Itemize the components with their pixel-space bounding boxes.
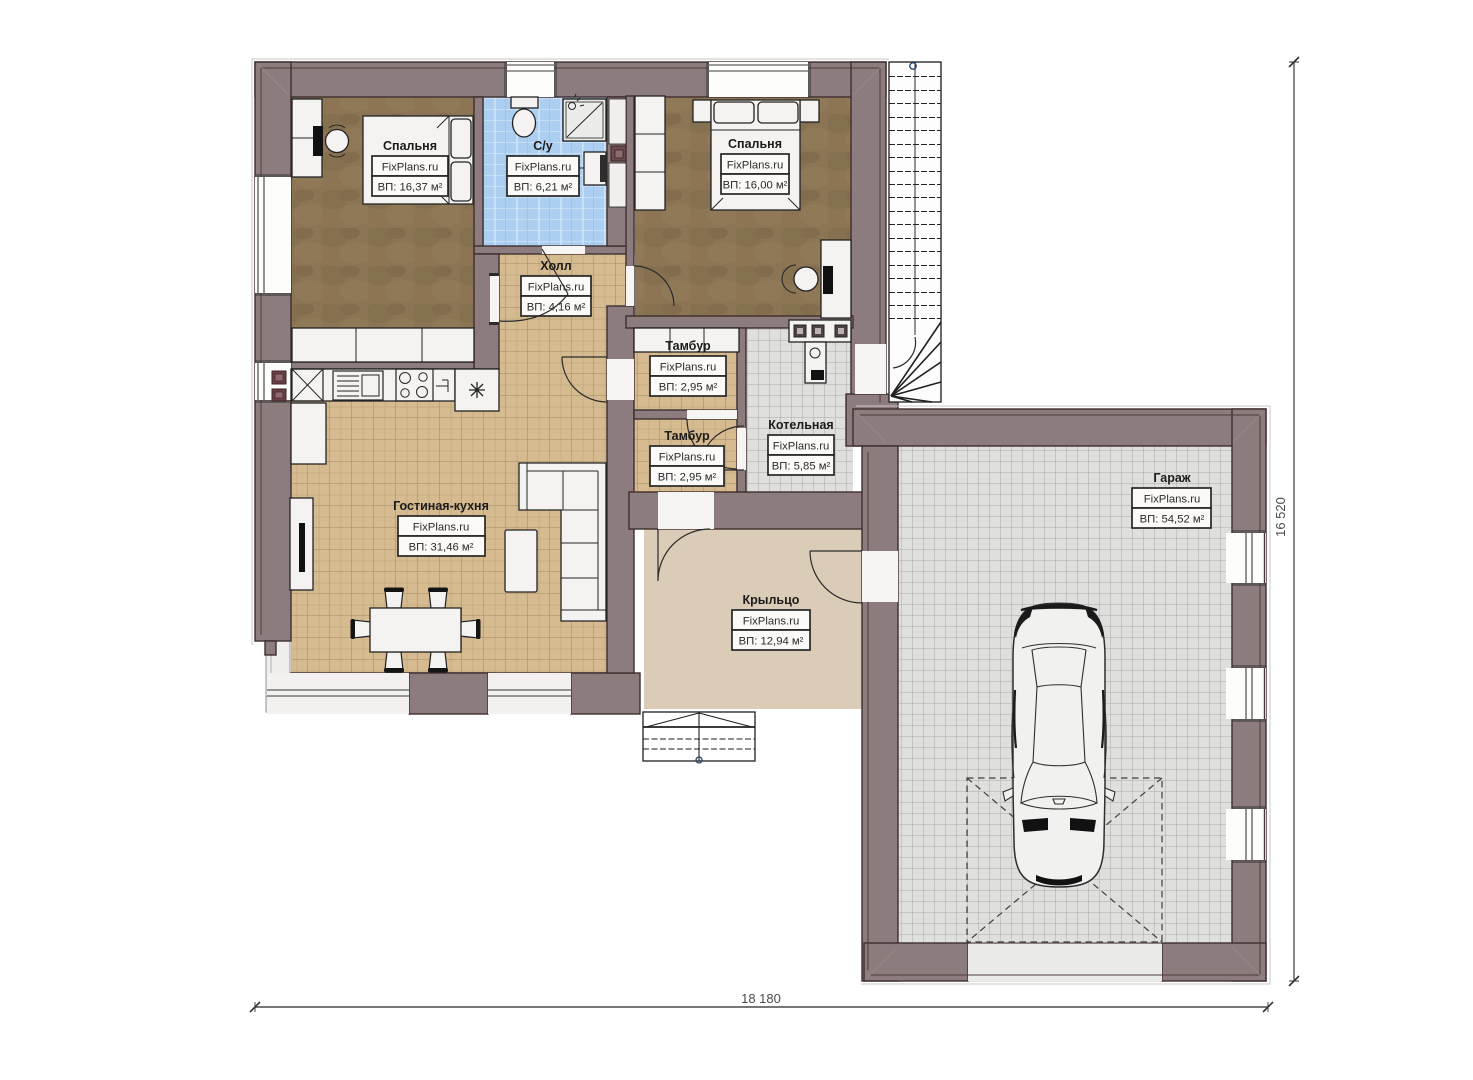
svg-text:FixPlans.ru: FixPlans.ru bbox=[528, 282, 585, 294]
svg-text:FixPlans.ru: FixPlans.ru bbox=[727, 160, 784, 172]
svg-text:FixPlans.ru: FixPlans.ru bbox=[660, 362, 717, 374]
svg-text:Крыльцо: Крыльцо bbox=[743, 593, 800, 607]
svg-text:ВП: 6,21 м²: ВП: 6,21 м² bbox=[514, 182, 573, 194]
svg-text:FixPlans.ru: FixPlans.ru bbox=[382, 162, 439, 174]
svg-text:FixPlans.ru: FixPlans.ru bbox=[659, 452, 716, 464]
svg-text:ВП: 2,95 м²: ВП: 2,95 м² bbox=[658, 472, 717, 484]
svg-text:С/у: С/у bbox=[533, 139, 553, 153]
svg-text:FixPlans.ru: FixPlans.ru bbox=[515, 162, 572, 174]
svg-text:16 520: 16 520 bbox=[1273, 497, 1288, 537]
svg-text:FixPlans.ru: FixPlans.ru bbox=[1144, 494, 1201, 506]
svg-text:ВП: 16,00 м²: ВП: 16,00 м² bbox=[723, 180, 788, 192]
svg-text:FixPlans.ru: FixPlans.ru bbox=[773, 441, 830, 453]
svg-text:ВП: 16,37 м²: ВП: 16,37 м² bbox=[378, 182, 443, 194]
svg-text:Холл: Холл bbox=[540, 259, 571, 273]
svg-text:Спальня: Спальня bbox=[728, 137, 782, 151]
svg-text:ВП: 2,95 м²: ВП: 2,95 м² bbox=[659, 382, 718, 394]
svg-text:FixPlans.ru: FixPlans.ru bbox=[413, 522, 470, 534]
svg-text:18 180: 18 180 bbox=[741, 991, 781, 1006]
svg-text:Тамбур: Тамбур bbox=[665, 339, 711, 353]
svg-text:Спальня: Спальня bbox=[383, 139, 437, 153]
svg-text:ВП: 5,85 м²: ВП: 5,85 м² bbox=[772, 461, 831, 473]
svg-text:ВП: 12,94 м²: ВП: 12,94 м² bbox=[739, 636, 804, 648]
svg-text:ВП: 31,46 м²: ВП: 31,46 м² bbox=[409, 542, 474, 554]
svg-text:ВП: 54,52 м²: ВП: 54,52 м² bbox=[1140, 514, 1205, 526]
svg-text:Котельная: Котельная bbox=[768, 418, 833, 432]
svg-text:Гостиная-кухня: Гостиная-кухня bbox=[393, 499, 489, 513]
svg-text:Тамбур: Тамбур bbox=[664, 429, 710, 443]
svg-text:ВП: 4,16 м²: ВП: 4,16 м² bbox=[527, 302, 586, 314]
svg-text:FixPlans.ru: FixPlans.ru bbox=[743, 616, 800, 628]
svg-text:Гараж: Гараж bbox=[1153, 471, 1190, 485]
